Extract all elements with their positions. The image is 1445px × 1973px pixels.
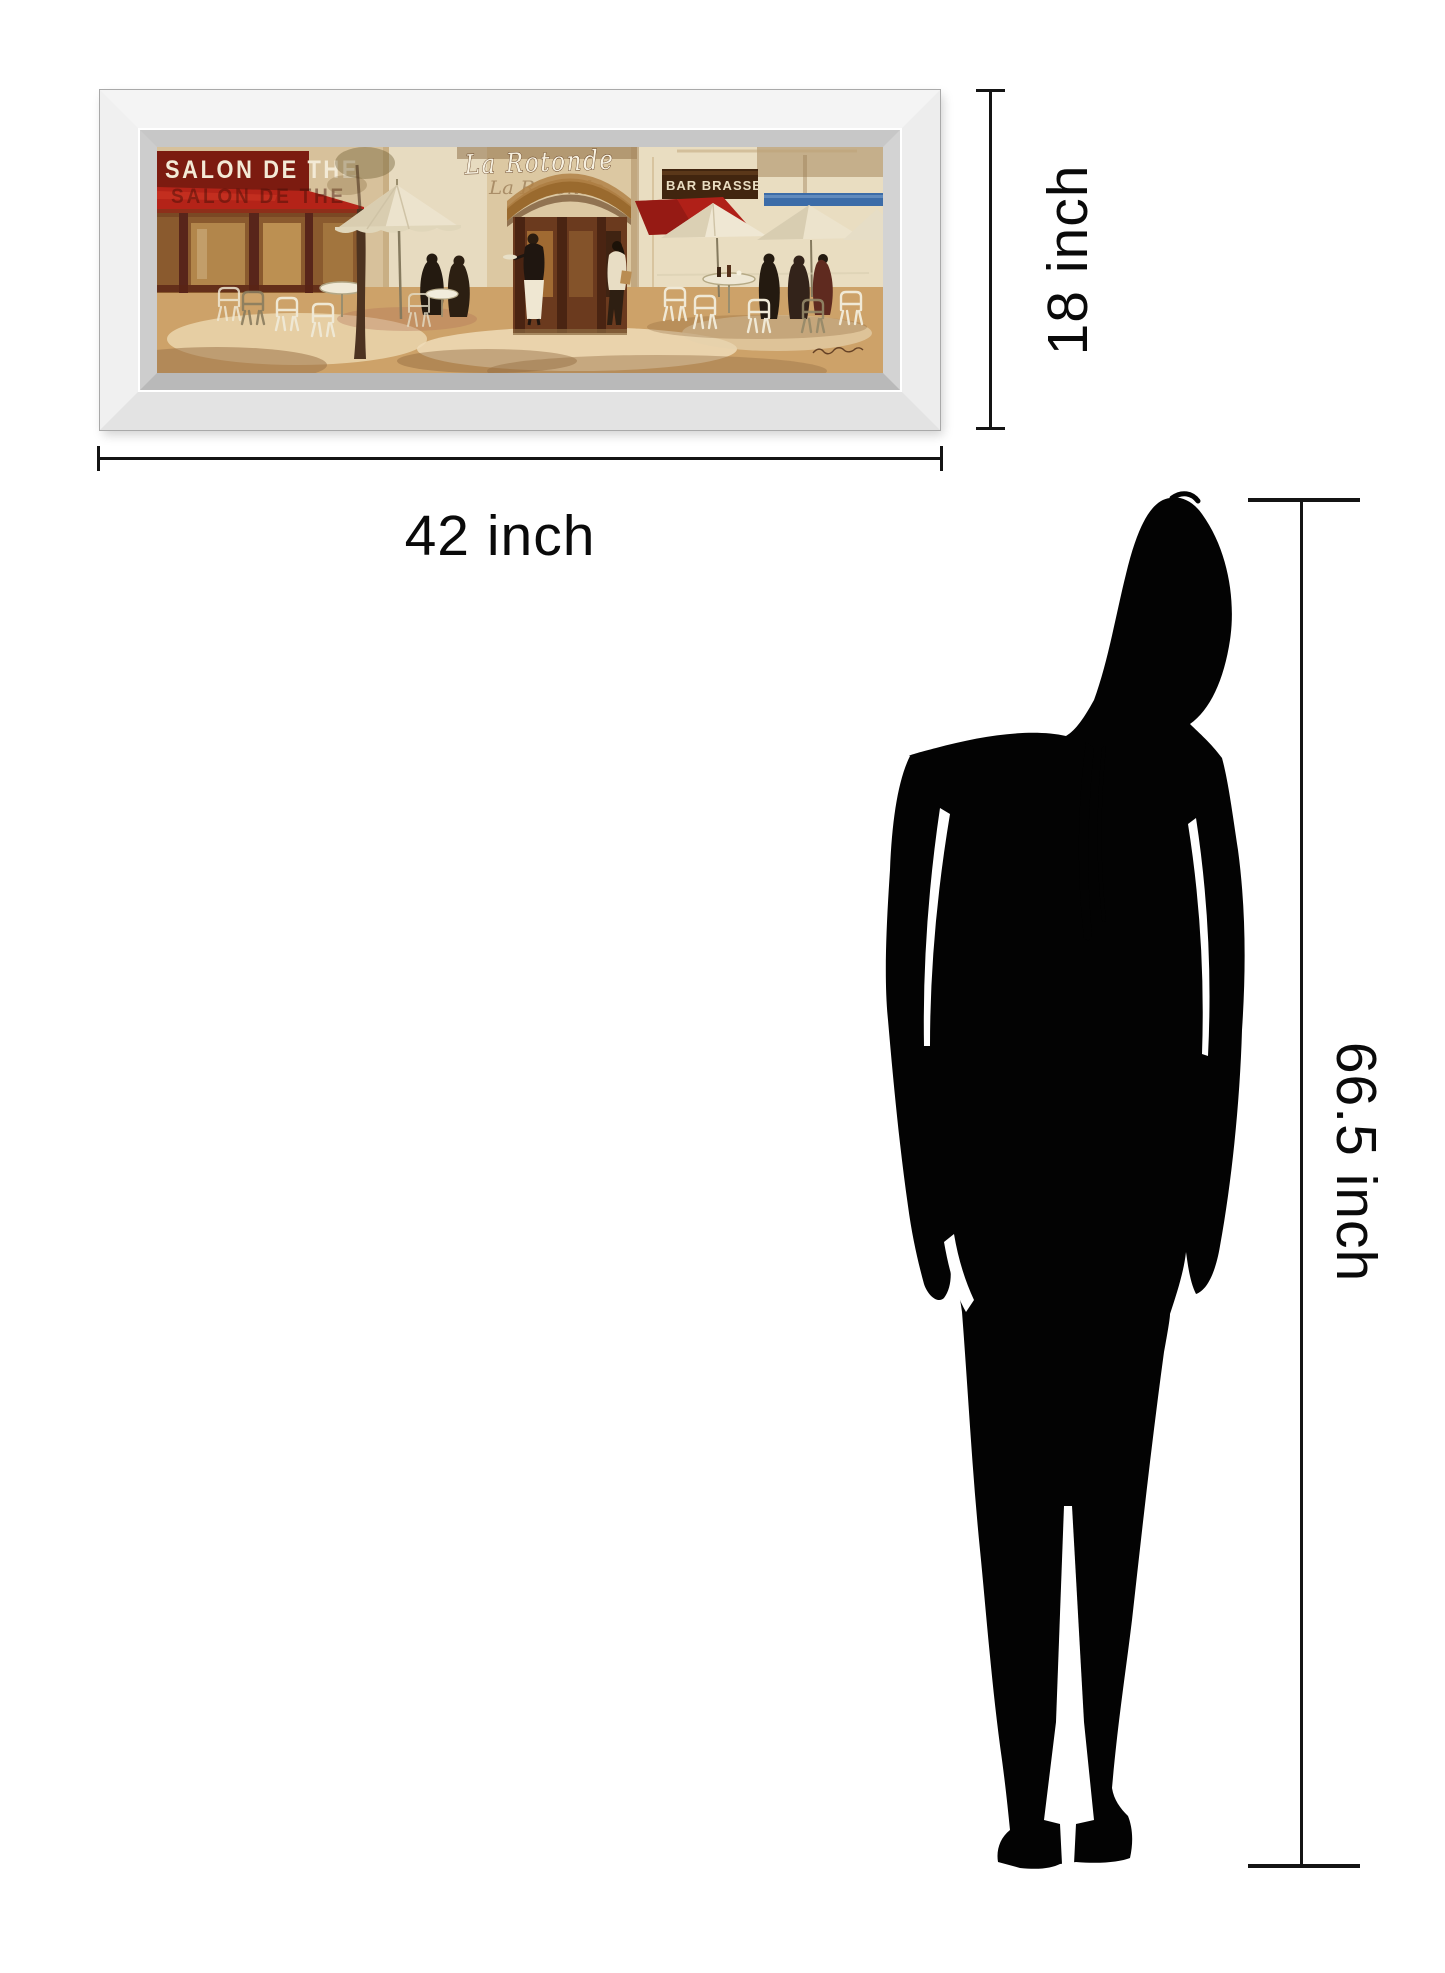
- woman-silhouette: [880, 490, 1270, 1880]
- rotonde-sign-text: La Rotonde: [463, 147, 615, 181]
- framed-artwork: SALON DE THE SALON DE THE: [100, 90, 940, 430]
- woman-silhouette-svg: [880, 490, 1270, 1880]
- width-dimension-cap-left: [97, 446, 100, 471]
- salon-storefront: SALON DE THE SALON DE THE: [157, 151, 364, 293]
- cafe-painting: SALON DE THE SALON DE THE: [157, 147, 883, 373]
- width-dimension-label: 42 inch: [405, 503, 596, 569]
- product-dimension-page: SALON DE THE SALON DE THE: [0, 0, 1445, 1973]
- salon-sign-text: SALON DE THE: [165, 156, 359, 184]
- person-height-line: [1300, 499, 1303, 1867]
- height-dimension-line: [989, 90, 992, 430]
- height-dimension-cap-bottom: [976, 427, 1005, 430]
- width-dimension-cap-right: [940, 446, 943, 471]
- blue-band: [764, 193, 883, 206]
- cafe-painting-svg: SALON DE THE SALON DE THE: [157, 147, 883, 373]
- person-height-label: 66.5 inch: [1323, 1042, 1389, 1282]
- salon-sign-echo: SALON DE THE: [171, 185, 346, 208]
- width-dimension-line: [99, 457, 941, 460]
- height-dimension-cap-top: [976, 89, 1005, 92]
- height-dimension-label: 18 inch: [1035, 165, 1101, 356]
